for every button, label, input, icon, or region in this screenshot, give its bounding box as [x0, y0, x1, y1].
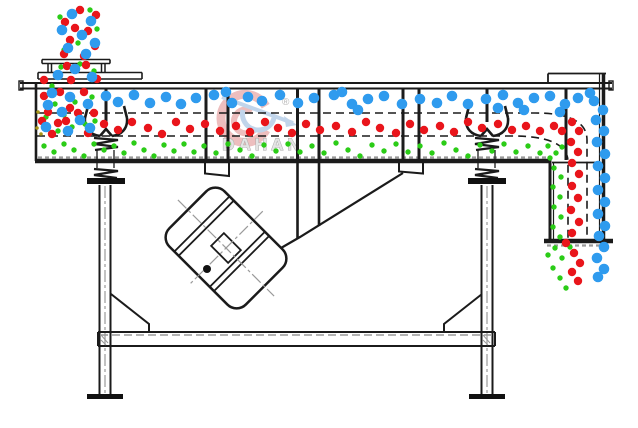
discharge-lip: [548, 74, 606, 84]
cross-beam: [98, 332, 495, 346]
blue-particle: [227, 98, 238, 109]
green-particle: [551, 165, 556, 170]
blue-particle: [86, 16, 97, 27]
green-particle: [477, 142, 482, 147]
blue-particle: [592, 137, 603, 148]
red-particle: [576, 259, 584, 267]
green-particle: [237, 147, 242, 152]
yellow-particle: [39, 132, 43, 136]
red-particle: [348, 128, 356, 136]
red-particle: [186, 125, 194, 133]
red-particle: [522, 122, 530, 130]
red-particle: [376, 124, 384, 132]
blue-particle: [275, 90, 286, 101]
red-particle: [114, 126, 122, 134]
blue-particle: [594, 231, 605, 242]
red-particle: [574, 194, 582, 202]
left-gusset: [111, 294, 149, 332]
green-particle: [345, 147, 350, 152]
red-particle: [82, 61, 90, 69]
green-particle: [57, 14, 62, 19]
green-particle: [41, 143, 46, 148]
red-particle: [494, 120, 502, 128]
green-particle: [537, 150, 542, 155]
top-cover: [20, 83, 612, 89]
green-particle: [171, 148, 176, 153]
green-particle: [563, 285, 568, 290]
red-particle: [574, 148, 582, 156]
blue-particle: [560, 99, 571, 110]
green-particle: [547, 155, 552, 160]
red-particle: [316, 126, 324, 134]
blue-particle: [493, 103, 504, 114]
blue-particle: [161, 92, 172, 103]
leg-top-plate: [87, 178, 125, 184]
green-particle: [225, 141, 230, 146]
green-particle: [545, 252, 550, 257]
blue-particle: [591, 115, 602, 126]
red-particle: [362, 118, 370, 126]
green-particle: [261, 142, 266, 147]
watermark-arrowhead: [284, 116, 297, 127]
blue-particle: [379, 91, 390, 102]
red-particle: [128, 118, 136, 126]
leg-beam-hatch: [101, 335, 490, 345]
blue-particle: [243, 92, 254, 103]
blue-particle: [81, 49, 92, 60]
right-foot-pad: [469, 394, 505, 399]
blue-particle: [599, 242, 610, 253]
blue-particle: [600, 221, 611, 232]
inlet-flange: [42, 60, 110, 64]
blue-particle: [57, 25, 68, 36]
green-particle: [417, 143, 422, 148]
green-particle: [101, 147, 106, 152]
red-particle: [90, 109, 98, 117]
green-particle: [550, 265, 555, 270]
blue-particle: [592, 253, 603, 264]
red-particle: [158, 130, 166, 138]
blue-particle: [129, 90, 140, 101]
blue-particle: [209, 90, 220, 101]
green-particle: [55, 128, 60, 133]
red-particle: [464, 118, 472, 126]
green-particle: [393, 141, 398, 146]
green-particle: [557, 234, 562, 239]
green-particle: [559, 144, 564, 149]
blue-particle: [599, 126, 610, 137]
green-particle: [141, 147, 146, 152]
green-particle: [87, 7, 92, 12]
red-particle: [71, 24, 79, 32]
blue-particle: [43, 100, 54, 111]
blue-particle: [57, 107, 68, 118]
blue-particle: [593, 185, 604, 196]
blue-particle: [593, 272, 604, 283]
red-particle: [567, 138, 575, 146]
red-particle: [568, 118, 576, 126]
blue-particle: [191, 93, 202, 104]
green-particle: [551, 204, 556, 209]
green-particle: [501, 141, 506, 146]
green-particle: [357, 153, 362, 158]
yellow-particle: [35, 126, 39, 130]
green-particle: [297, 149, 302, 154]
right-gusset: [444, 294, 482, 332]
red-particle: [575, 127, 583, 135]
blue-particle: [41, 122, 52, 133]
green-particle: [559, 255, 564, 260]
blue-particle: [589, 96, 600, 107]
blue-particle: [75, 115, 86, 126]
green-particle: [369, 142, 374, 147]
red-particle: [574, 277, 582, 285]
green-particle: [92, 118, 97, 123]
green-particle: [513, 149, 518, 154]
green-particle: [525, 143, 530, 148]
red-particle: [274, 124, 282, 132]
red-particle: [144, 124, 152, 132]
blue-particle: [545, 91, 556, 102]
red-particle: [575, 170, 583, 178]
green-particle: [249, 153, 254, 158]
blue-particle: [85, 123, 96, 134]
blue-particle: [293, 98, 304, 109]
blue-particle: [309, 93, 320, 104]
blue-particle: [447, 91, 458, 102]
vibration-motor: [141, 163, 311, 333]
blue-particle: [90, 38, 101, 49]
red-particle: [288, 129, 296, 137]
green-particle: [550, 184, 555, 189]
blue-particle: [415, 94, 426, 105]
green-particle: [557, 275, 562, 280]
red-particle: [436, 122, 444, 130]
motor-bolt: [203, 265, 211, 273]
red-particle: [172, 118, 180, 126]
green-particle: [441, 140, 446, 145]
red-particle: [216, 127, 224, 135]
bracket-left-tab: [205, 163, 229, 176]
green-particle: [191, 149, 196, 154]
blue-particle: [519, 105, 530, 116]
green-particle: [465, 153, 470, 158]
red-particle: [261, 118, 269, 126]
green-particle: [151, 153, 156, 158]
blue-particle: [257, 96, 268, 107]
left-foot-pad: [87, 394, 123, 399]
red-particle: [570, 249, 578, 257]
blue-particle: [593, 161, 604, 172]
red-particle: [62, 117, 70, 125]
red-particle: [302, 120, 310, 128]
blue-particle: [101, 91, 112, 102]
coarse-particles-blue: [41, 9, 611, 283]
green-particle: [94, 26, 99, 31]
bracket-diagonal: [281, 173, 403, 248]
blue-particle: [70, 64, 81, 75]
green-particle: [51, 149, 56, 154]
blue-particle: [529, 93, 540, 104]
red-particle: [100, 120, 108, 128]
green-particle: [545, 143, 550, 148]
red-particle: [550, 122, 558, 130]
blue-particle: [600, 197, 611, 208]
particles: [35, 6, 610, 291]
green-particle: [58, 64, 63, 69]
red-particle: [536, 127, 544, 135]
blue-particle: [363, 94, 374, 105]
red-particle: [246, 128, 254, 136]
green-particle: [285, 141, 290, 146]
green-particle: [453, 147, 458, 152]
yellow-particle: [36, 110, 40, 114]
red-particle: [558, 127, 566, 135]
red-particle: [450, 128, 458, 136]
blue-particle: [353, 105, 364, 116]
green-particle: [121, 150, 126, 155]
blue-particle: [176, 99, 187, 110]
blue-particle: [397, 99, 408, 110]
green-particle: [553, 150, 558, 155]
blue-particle: [598, 105, 609, 116]
red-particle: [575, 218, 583, 226]
blue-particle: [47, 88, 58, 99]
red-particle: [568, 159, 576, 167]
green-particle: [333, 140, 338, 145]
green-particle: [381, 148, 386, 153]
bracket-right-tab: [399, 163, 423, 174]
red-particle: [201, 120, 209, 128]
green-particle: [111, 143, 116, 148]
blue-particle: [87, 72, 98, 83]
red-particle: [508, 126, 516, 134]
green-particle: [273, 148, 278, 153]
blue-particle: [600, 149, 611, 160]
green-particle: [321, 150, 326, 155]
green-particle: [550, 224, 555, 229]
red-particle: [54, 119, 62, 127]
green-particle: [81, 153, 86, 158]
blue-particle: [593, 209, 604, 220]
red-particle: [568, 182, 576, 190]
green-particle: [213, 150, 218, 155]
red-particle: [568, 229, 576, 237]
red-particle: [420, 126, 428, 134]
diagram-canvas: DAHAN ®: [0, 0, 638, 428]
blue-particle: [83, 99, 94, 110]
blue-particle: [145, 98, 156, 109]
green-particle: [405, 149, 410, 154]
blue-particle: [481, 94, 492, 105]
green-particle: [557, 194, 562, 199]
green-particle: [489, 148, 494, 153]
vibrating-screen-diagram: DAHAN ®: [0, 0, 638, 428]
leg-top-plate: [468, 178, 506, 184]
blue-particle: [600, 173, 611, 184]
blue-particle: [113, 97, 124, 108]
green-particle: [91, 141, 96, 146]
green-particle: [89, 94, 94, 99]
blue-particle: [53, 70, 64, 81]
green-particle: [552, 245, 557, 250]
blue-particle: [432, 98, 443, 109]
blue-particle: [498, 90, 509, 101]
blue-particle: [573, 93, 584, 104]
green-particle: [309, 143, 314, 148]
blue-particle: [463, 99, 474, 110]
red-particle: [406, 120, 414, 128]
red-particle: [562, 239, 570, 247]
green-particle: [429, 150, 434, 155]
red-particle: [40, 76, 48, 84]
blue-particle: [67, 9, 78, 20]
red-particle: [332, 122, 340, 130]
red-particle: [67, 76, 75, 84]
blue-particle: [337, 87, 348, 98]
green-particle: [181, 141, 186, 146]
spring-coil-lower: [94, 169, 118, 178]
green-particle: [71, 147, 76, 152]
blue-particle: [221, 87, 232, 98]
red-particle: [80, 88, 88, 96]
motor-centerlines: [141, 163, 311, 333]
red-particle: [478, 124, 486, 132]
green-particle: [131, 140, 136, 145]
green-particle: [61, 141, 66, 146]
red-particle: [392, 129, 400, 137]
green-particle: [201, 143, 206, 148]
spring-coil-lower: [475, 169, 499, 178]
green-particle: [161, 142, 166, 147]
red-particle: [232, 122, 240, 130]
red-particle: [568, 268, 576, 276]
blue-particle: [63, 126, 74, 137]
green-particle: [558, 214, 563, 219]
green-particle: [558, 174, 563, 179]
red-particle: [567, 206, 575, 214]
green-particle: [75, 40, 80, 45]
blue-particle: [65, 92, 76, 103]
support-frame: [87, 185, 505, 399]
blue-particle: [77, 30, 88, 41]
blue-particle: [63, 43, 74, 54]
